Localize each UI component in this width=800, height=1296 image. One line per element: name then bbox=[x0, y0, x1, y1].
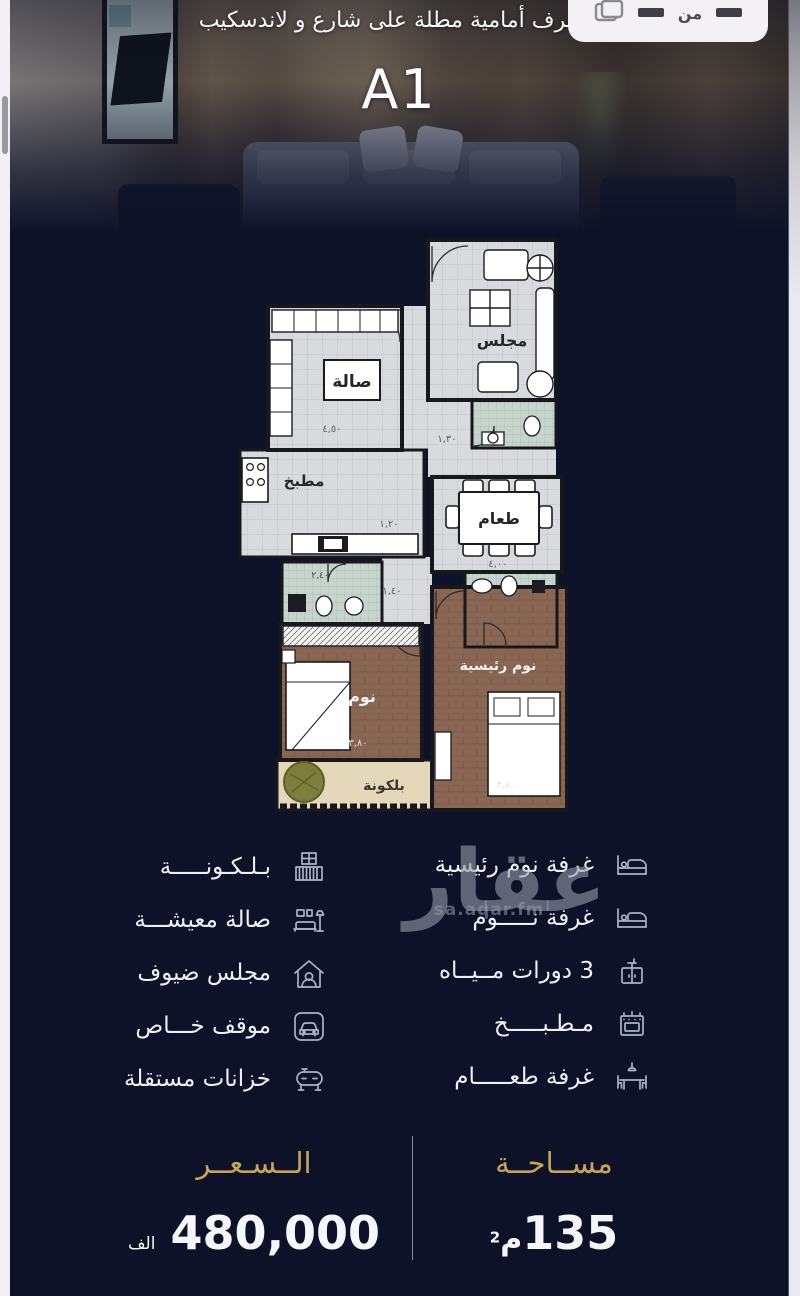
area-superscript: 2 bbox=[490, 1229, 500, 1247]
area-heading: مســاحــة bbox=[438, 1146, 670, 1180]
sink-icon bbox=[612, 951, 652, 991]
feature-label: 3 دورات مــيــاه bbox=[439, 958, 594, 984]
summary-divider bbox=[412, 1136, 413, 1260]
area-block: مســاحــة 135م2 bbox=[438, 1146, 670, 1260]
feature-label: مجلس ضيوف bbox=[137, 960, 271, 986]
price-value: 480,000 bbox=[171, 1206, 381, 1260]
balcony-icon bbox=[289, 847, 329, 887]
bedroom-label: نوم bbox=[348, 687, 376, 706]
corridor-dim: ١,٢٠ bbox=[379, 519, 398, 530]
guest-majlis-icon bbox=[289, 953, 329, 993]
cropped-number bbox=[716, 8, 742, 17]
feature-private-parking: موقف خـــاص bbox=[79, 999, 329, 1052]
price-block: الــسـعــر 480,000 الف bbox=[118, 1146, 390, 1260]
feature-dining-room: غرفة طعـــــام bbox=[382, 1050, 652, 1103]
feature-label: صالة معيشـــة bbox=[134, 907, 271, 933]
feature-label: مـطـبـــــخ bbox=[494, 1011, 594, 1037]
bed-icon bbox=[612, 845, 652, 885]
area-value: 135 bbox=[522, 1206, 618, 1260]
area-value-row: 135م2 bbox=[438, 1206, 670, 1260]
feature-label: خزانات مستقلة bbox=[124, 1066, 271, 1092]
right-page-edge bbox=[788, 0, 800, 1296]
dining-label: طعام bbox=[478, 509, 520, 528]
feature-label: غرفة نوم رئيسية bbox=[435, 852, 594, 878]
price-heading: الــسـعــر bbox=[118, 1146, 390, 1180]
living-room-icon bbox=[289, 900, 329, 940]
cropped-number bbox=[638, 8, 664, 17]
corridor-dim: ١,٤٠ bbox=[382, 586, 401, 597]
hall-dim: ٤,٥٠ bbox=[322, 424, 341, 435]
feature-kitchen: مـطـبـــــخ bbox=[382, 997, 652, 1050]
bathroom-dim: ٢,٤٠ bbox=[311, 571, 328, 581]
price-unit: الف bbox=[128, 1234, 156, 1254]
left-page-edge bbox=[0, 0, 10, 1296]
bedroom-dim: ٣,٨٠ bbox=[348, 738, 367, 749]
feature-label: بـلـكـونـــــة bbox=[160, 854, 271, 880]
price-value-row: 480,000 الف bbox=[118, 1206, 390, 1260]
area-unit: م bbox=[500, 1222, 522, 1257]
floor-plan-svg: صالة ٤,٥٠ مطبخ ١,٢٠ bbox=[232, 234, 568, 820]
corridor-dim: ١,٣٠ bbox=[437, 434, 456, 445]
hall-label: صالة bbox=[332, 372, 372, 392]
floor-plan: صالة ٤,٥٠ مطبخ ١,٢٠ bbox=[232, 234, 568, 820]
feature-balcony: بـلـكـونـــــة bbox=[79, 840, 329, 893]
feature-master-bedroom: غرفة نوم رئيسية bbox=[382, 838, 652, 891]
badge-text: من bbox=[678, 4, 702, 23]
dining-dim: ٤,٠٠ bbox=[488, 559, 507, 570]
scrollbar-thumb[interactable] bbox=[2, 96, 8, 154]
car-icon bbox=[289, 1006, 329, 1046]
master-bedroom-label: نوم رئيسية bbox=[460, 658, 537, 674]
features-column-right: غرفة نوم رئيسية غرفة نـــــوم 3 دورات مـ… bbox=[382, 838, 652, 1103]
feature-guest-majlis: مجلس ضيوف bbox=[79, 946, 329, 999]
right-page-edge-photo bbox=[789, 0, 800, 300]
unit-label: A1 bbox=[10, 58, 788, 121]
water-tank-icon bbox=[289, 1059, 329, 1099]
master-bedroom-dim: ٣,٨٠ bbox=[496, 780, 515, 791]
photos-icon bbox=[594, 0, 624, 26]
feature-label: موقف خـــاص bbox=[135, 1013, 271, 1039]
photo-counter-badge: من bbox=[568, 0, 768, 42]
feature-living-room: صالة معيشـــة bbox=[79, 893, 329, 946]
feature-label: غرفة نـــــوم bbox=[472, 905, 594, 931]
dining-table-icon bbox=[612, 1057, 652, 1097]
listing-flyer-page: 4 غرف أمامية مطلة على شارع و لاندسكيب A1… bbox=[0, 0, 800, 1296]
feature-label: غرفة طعـــــام bbox=[454, 1064, 594, 1090]
features-column-left: بـلـكـونـــــة صالة معيشـــة مجلس ضيوف bbox=[79, 840, 329, 1105]
balcony-label: بلكونة bbox=[363, 778, 405, 794]
oven-icon bbox=[612, 1004, 652, 1044]
feature-bathrooms: 3 دورات مــيــاه bbox=[382, 944, 652, 997]
majlis-label: مجلس bbox=[477, 331, 528, 350]
kitchen-label: مطبخ bbox=[284, 472, 325, 490]
feature-water-tanks: خزانات مستقلة bbox=[79, 1052, 329, 1105]
bed-icon bbox=[612, 898, 652, 938]
feature-bedroom: غرفة نـــــوم bbox=[382, 891, 652, 944]
